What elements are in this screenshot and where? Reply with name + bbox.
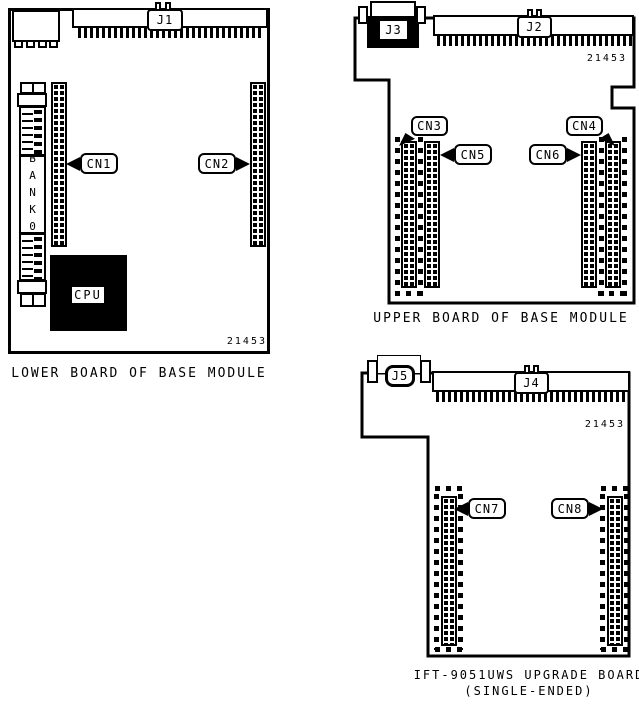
cn8-pad-dots-icon [601,486,628,491]
cn2-callout: CN2 [198,153,236,174]
lower-board-outline [8,8,270,354]
j1-label-text: J1 [157,13,173,27]
j2-connector-label: J2 [517,16,552,38]
cpu-label-text: CPU [74,288,102,302]
cn4-pin-header [605,141,621,288]
j5-connector-label: J5 [385,365,415,387]
cn8-pad-dots-icon [624,494,629,650]
bank0-socket-clip-icon [17,280,47,294]
cn7-pad-dots-icon [435,486,462,491]
cn7-pad-dots-icon [434,494,439,650]
cn8-label-text: CN8 [558,502,583,516]
cn7-pad-dots-icon [435,647,462,652]
upgrade-board-caption-line2: (SINGLE-ENDED) [398,684,639,698]
j3-connector-label: J3 [380,21,407,39]
j4-label-text: J4 [523,376,539,390]
j5-bracket-icon [420,360,431,383]
cn7-pointer-icon [454,502,468,516]
cn5-pin-header [424,141,440,288]
cn5-label-text: CN5 [461,148,486,162]
cn5-callout: CN5 [454,144,492,165]
j3-screw-post-icon [416,6,426,24]
j5-bracket-icon [367,360,378,383]
upper-part-number: 21453 [585,53,627,64]
power-connector-foot-icon [49,40,58,48]
cn3-pin-header [401,141,417,288]
cn2-pointer-icon [236,157,250,171]
cn8-pad-dots-icon [600,494,605,650]
wiring-diagram: J1 BANK0 CN1 CN2 CPU 21453 LOWER BOARD O… [0,0,639,706]
cn8-pin-header [607,496,623,646]
bank0-socket-tab-icon [20,293,46,307]
upgrade-board-caption-line1: IFT-9051UWS UPGRADE BOARD [398,668,639,682]
power-connector-foot-icon [26,40,35,48]
cn8-callout: CN8 [551,498,589,519]
cn1-callout: CN1 [80,153,118,174]
cn7-label-text: CN7 [475,502,500,516]
j3-screw-post-icon [358,6,368,24]
cn6-callout: CN6 [529,144,567,165]
power-connector-foot-icon [14,40,23,48]
cn3-pad-dots-icon [418,137,423,297]
cn4-callout: CN4 [566,116,603,136]
cn6-label-text: CN6 [536,148,561,162]
bank0-socket-clip-icon [17,93,47,107]
bank0-socket-pins-icon [19,106,46,156]
cn2-label-text: CN2 [205,157,230,171]
bank0-label-text: BANK0 [26,152,39,237]
lower-board-caption: LOWER BOARD OF BASE MODULE [8,366,270,381]
cn6-pin-header [581,141,597,288]
j3-shell-icon [370,1,416,18]
power-connector [12,10,60,42]
j4-connector-label: J4 [514,372,549,394]
cn7-pad-dots-icon [458,494,463,650]
cn2-pin-header [250,82,266,247]
j1-connector-label: J1 [147,9,183,31]
cpu-label: CPU [72,287,104,303]
cn4-pad-dots-icon [599,137,604,297]
cn7-callout: CN7 [468,498,506,519]
cn1-label-text: CN1 [87,157,112,171]
cn6-pointer-icon [567,148,581,162]
cn1-pointer-icon [66,157,80,171]
upgrade-part-number: 21453 [583,419,625,430]
lower-part-number: 21453 [225,336,267,347]
cn7-pin-header [441,496,457,646]
cn3-pad-dots-icon [395,291,422,296]
bank0-socket-pins-icon [19,233,46,281]
cn3-label-text: CN3 [417,119,442,133]
cn3-pad-dots-icon [395,137,400,297]
cn3-callout: CN3 [411,116,448,136]
cn1-pin-header [51,82,67,247]
cn4-label-text: CN4 [572,119,597,133]
cn8-pointer-icon [589,502,603,516]
upper-board-caption: UPPER BOARD OF BASE MODULE [368,311,634,326]
power-connector-foot-icon [38,40,47,48]
bank0-label: BANK0 [19,155,46,234]
cn5-pointer-icon [440,148,454,162]
j2-label-text: J2 [526,20,542,34]
cn4-pad-dots-icon [598,291,625,296]
j3-label-text: J3 [385,23,401,37]
cn8-pad-dots-icon [601,647,628,652]
cn4-pad-dots-icon [622,137,627,297]
j5-label-text: J5 [392,369,408,383]
